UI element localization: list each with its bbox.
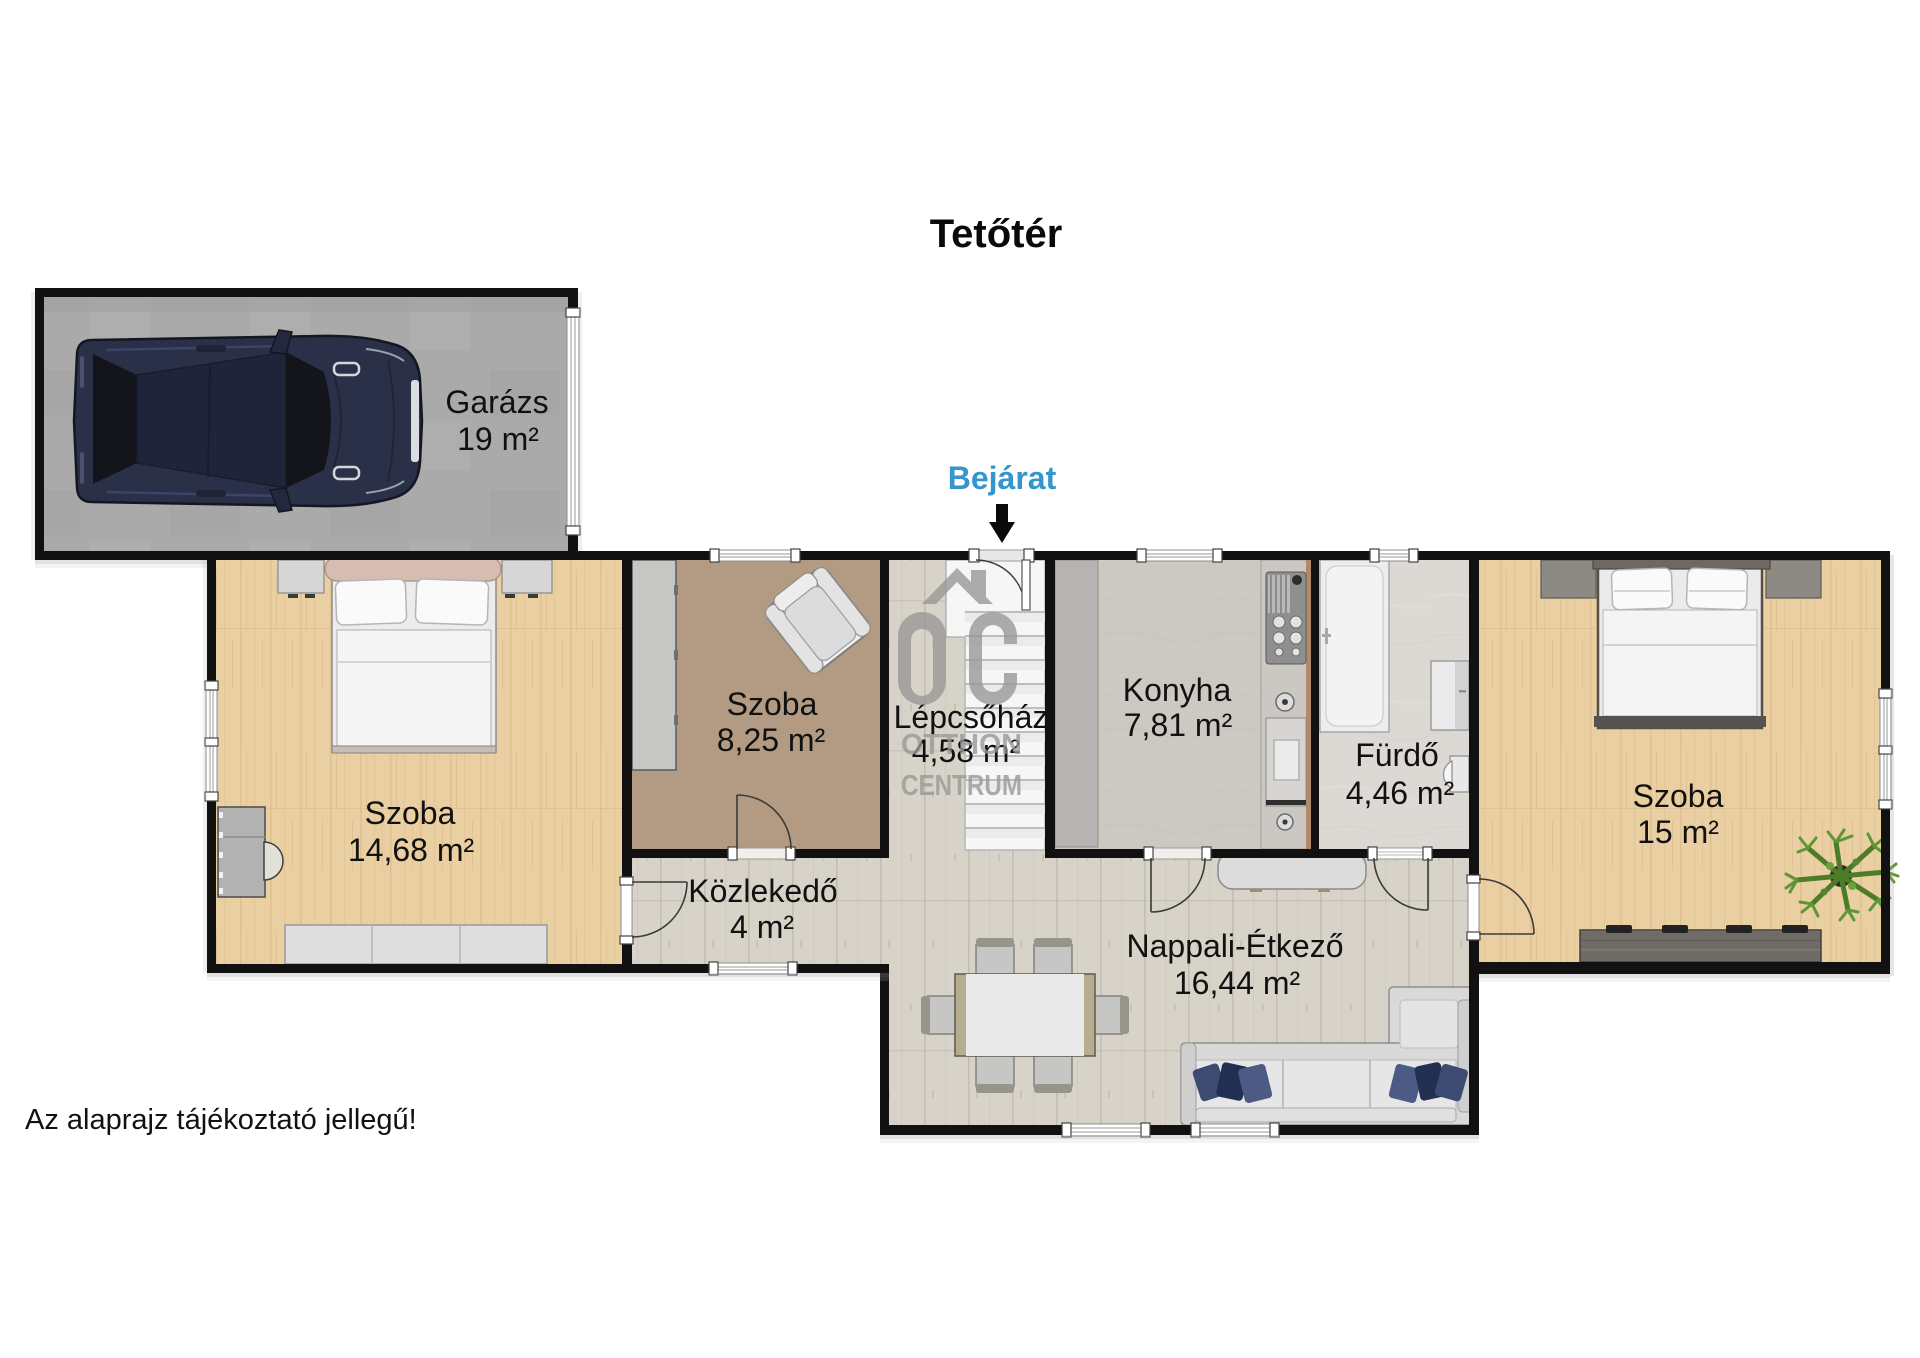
svg-text:Az alaprajz tájékoztató jelleg: Az alaprajz tájékoztató jellegű! <box>25 1104 417 1136</box>
svg-text:Tetőtér: Tetőtér <box>930 212 1063 256</box>
svg-text:8,25 m²: 8,25 m² <box>717 722 826 758</box>
svg-text:15 m²: 15 m² <box>1637 814 1719 850</box>
svg-text:Nappali-Étkező: Nappali-Étkező <box>1127 928 1344 964</box>
svg-text:7,81 m²: 7,81 m² <box>1124 707 1233 743</box>
svg-text:14,68 m²: 14,68 m² <box>348 832 475 868</box>
svg-text:Garázs: Garázs <box>445 384 548 420</box>
svg-text:19 m²: 19 m² <box>457 421 539 457</box>
svg-text:Szoba: Szoba <box>727 686 818 722</box>
svg-text:OTTHON: OTTHON <box>901 729 1022 761</box>
svg-text:Fürdő: Fürdő <box>1355 737 1439 773</box>
svg-text:16,44 m²: 16,44 m² <box>1174 965 1301 1001</box>
svg-text:4,46 m²: 4,46 m² <box>1346 775 1455 811</box>
svg-text:Szoba: Szoba <box>365 795 456 831</box>
svg-text:4 m²: 4 m² <box>730 909 794 945</box>
svg-text:Közlekedő: Közlekedő <box>688 873 837 909</box>
svg-text:Konyha: Konyha <box>1123 672 1232 708</box>
svg-text:Szoba: Szoba <box>1633 778 1724 814</box>
svg-text:CENTRUM: CENTRUM <box>901 770 1022 802</box>
svg-text:Bejárat: Bejárat <box>948 460 1057 496</box>
